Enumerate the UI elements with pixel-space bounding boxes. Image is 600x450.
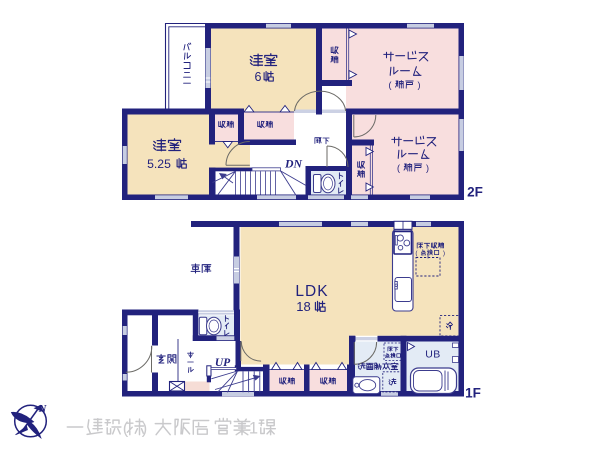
svg-text:N: N [38, 404, 47, 415]
svg-text:18: 18 [296, 299, 310, 314]
svg-text:): ) [426, 163, 429, 173]
svg-text:5.25: 5.25 [147, 157, 171, 171]
svg-text:DN: DN [284, 156, 303, 170]
svg-text:1F: 1F [465, 386, 481, 401]
svg-text:): ) [443, 250, 445, 257]
svg-text:UP: UP [215, 357, 231, 369]
svg-text:(: ( [397, 163, 400, 173]
svg-text:UB: UB [425, 349, 441, 361]
svg-text:6: 6 [255, 70, 262, 84]
svg-text:LDK: LDK [295, 283, 328, 300]
svg-text:(: ( [389, 80, 392, 90]
svg-text:1: 1 [249, 420, 258, 438]
svg-text:): ) [418, 80, 421, 90]
svg-text:2F: 2F [467, 185, 483, 200]
svg-text:): ) [142, 420, 148, 438]
svg-text:(: ( [123, 420, 129, 438]
